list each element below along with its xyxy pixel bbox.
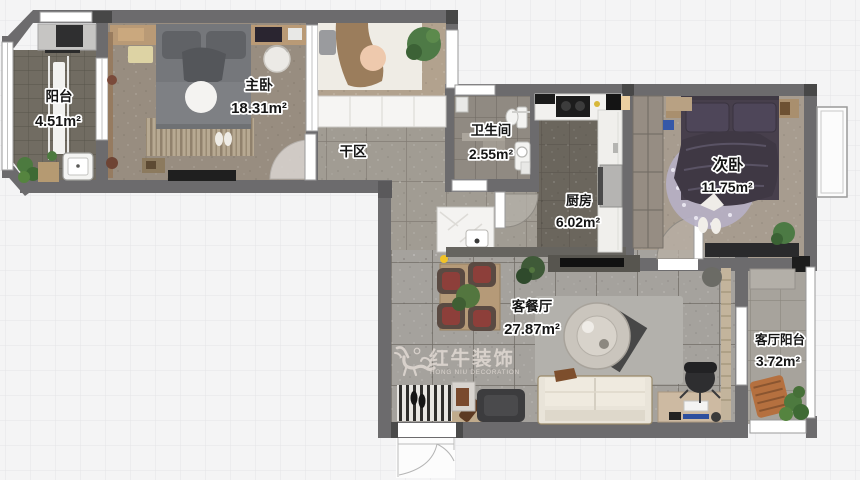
svg-text:干区: 干区 <box>340 144 367 159</box>
svg-text:11.75m²: 11.75m² <box>701 179 753 195</box>
svg-text:27.87m²: 27.87m² <box>504 321 560 338</box>
svg-text:18.31m²: 18.31m² <box>231 100 287 117</box>
svg-text:6.02m²: 6.02m² <box>556 214 601 230</box>
svg-text:次卧: 次卧 <box>712 155 744 174</box>
svg-text:阳台: 阳台 <box>46 88 73 104</box>
svg-text:4.51m²: 4.51m² <box>35 114 81 130</box>
svg-text:2.55m²: 2.55m² <box>469 146 514 162</box>
svg-text:3.72m²: 3.72m² <box>756 353 801 369</box>
svg-text:客厅阳台: 客厅阳台 <box>754 332 805 347</box>
svg-text:厨房: 厨房 <box>566 193 592 208</box>
svg-text:HONG NIU DECORATION: HONG NIU DECORATION <box>430 369 520 376</box>
svg-text:红牛装饰: 红牛装饰 <box>429 347 515 370</box>
svg-text:主卧: 主卧 <box>245 77 273 93</box>
svg-text:卫生间: 卫生间 <box>471 122 512 138</box>
svg-text:客餐厅: 客餐厅 <box>511 298 553 314</box>
